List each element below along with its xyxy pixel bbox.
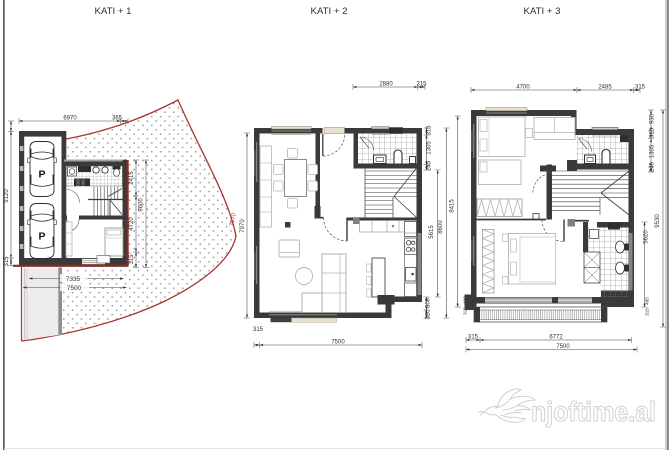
svg-text:315: 315: [650, 127, 656, 138]
svg-text:9600: 9600: [139, 198, 145, 212]
svg-text:320: 320: [426, 309, 432, 320]
svg-text:1305: 1305: [427, 141, 433, 155]
svg-text:njoftime.al: njoftime.al: [531, 396, 656, 427]
svg-text:5620: 5620: [644, 230, 650, 244]
svg-text:4720: 4720: [129, 217, 135, 231]
svg-text:485: 485: [645, 297, 650, 305]
svg-text:365: 365: [112, 115, 123, 121]
svg-text:KATI + 3: KATI + 3: [524, 6, 561, 17]
svg-text:315: 315: [468, 334, 479, 340]
svg-text:315: 315: [635, 84, 646, 90]
svg-text:P: P: [38, 169, 45, 181]
svg-text:315: 315: [253, 327, 264, 333]
svg-text:4700: 4700: [516, 84, 530, 90]
svg-text:6970: 6970: [63, 115, 77, 121]
svg-text:5615: 5615: [429, 225, 435, 239]
svg-text:7500: 7500: [556, 344, 570, 350]
svg-text:315: 315: [463, 307, 468, 315]
svg-text:9530: 9530: [655, 214, 661, 228]
svg-text:315: 315: [645, 308, 650, 316]
svg-text:1305: 1305: [650, 144, 656, 158]
svg-text:480: 480: [463, 296, 468, 304]
svg-text:800: 800: [426, 297, 432, 308]
svg-text:7500: 7500: [67, 285, 82, 292]
svg-text:2880: 2880: [379, 81, 393, 87]
svg-text:KATI + 1: KATI + 1: [95, 6, 132, 17]
svg-text:930: 930: [650, 113, 656, 124]
svg-text:8600: 8600: [438, 220, 444, 234]
svg-text:315: 315: [4, 256, 10, 267]
svg-text:P: P: [38, 231, 45, 243]
svg-text:6772: 6772: [549, 334, 563, 340]
svg-text:9120: 9120: [4, 189, 10, 203]
svg-text:7500: 7500: [331, 339, 345, 345]
svg-text:245: 245: [427, 160, 433, 171]
svg-text:KATI + 2: KATI + 2: [311, 6, 348, 17]
svg-text:2415: 2415: [129, 171, 135, 185]
svg-text:7970: 7970: [240, 219, 246, 233]
svg-text:315: 315: [427, 125, 433, 136]
svg-text:7335: 7335: [66, 276, 81, 283]
svg-text:315: 315: [129, 254, 135, 265]
svg-text:245: 245: [650, 161, 656, 172]
svg-text:315: 315: [416, 81, 427, 87]
svg-text:2485: 2485: [598, 84, 612, 90]
svg-text:8415: 8415: [450, 199, 456, 213]
